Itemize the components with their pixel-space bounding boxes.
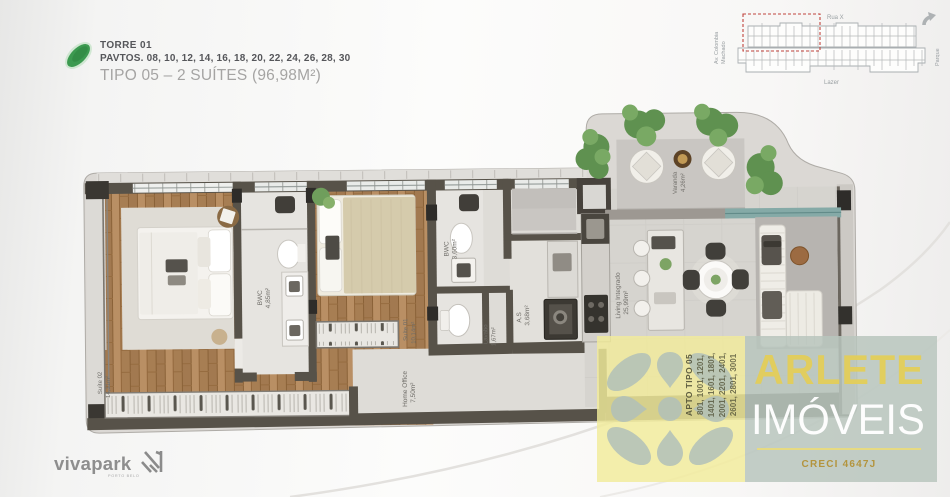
svg-text:1,67m²: 1,67m² (491, 327, 497, 346)
svg-text:3,60m²: 3,60m² (451, 238, 458, 259)
svg-text:4,85m²: 4,85m² (265, 287, 272, 308)
svg-text:Living Integrado: Living Integrado (615, 272, 622, 319)
svg-text:7,50m²: 7,50m² (410, 382, 417, 403)
svg-text:A.S: A.S (516, 312, 523, 323)
svg-text:3,68m²: 3,68m² (524, 305, 531, 326)
svg-text:BWC: BWC (443, 241, 450, 257)
svg-text:Lavabo: Lavabo (483, 324, 489, 344)
svg-text:10,14m²: 10,14m² (411, 322, 417, 344)
svg-text:14,31m²: 14,31m² (106, 376, 112, 398)
svg-text:Home Office: Home Office (402, 370, 409, 406)
svg-text:Varanda: Varanda (673, 171, 679, 194)
svg-text:BWC: BWC (257, 290, 264, 306)
svg-text:25,99m²: 25,99m² (623, 290, 630, 315)
svg-text:4,26m²: 4,26m² (681, 173, 687, 192)
svg-text:Suíte 01: Suíte 01 (403, 318, 409, 341)
svg-text:Suíte 02: Suíte 02 (98, 371, 104, 394)
